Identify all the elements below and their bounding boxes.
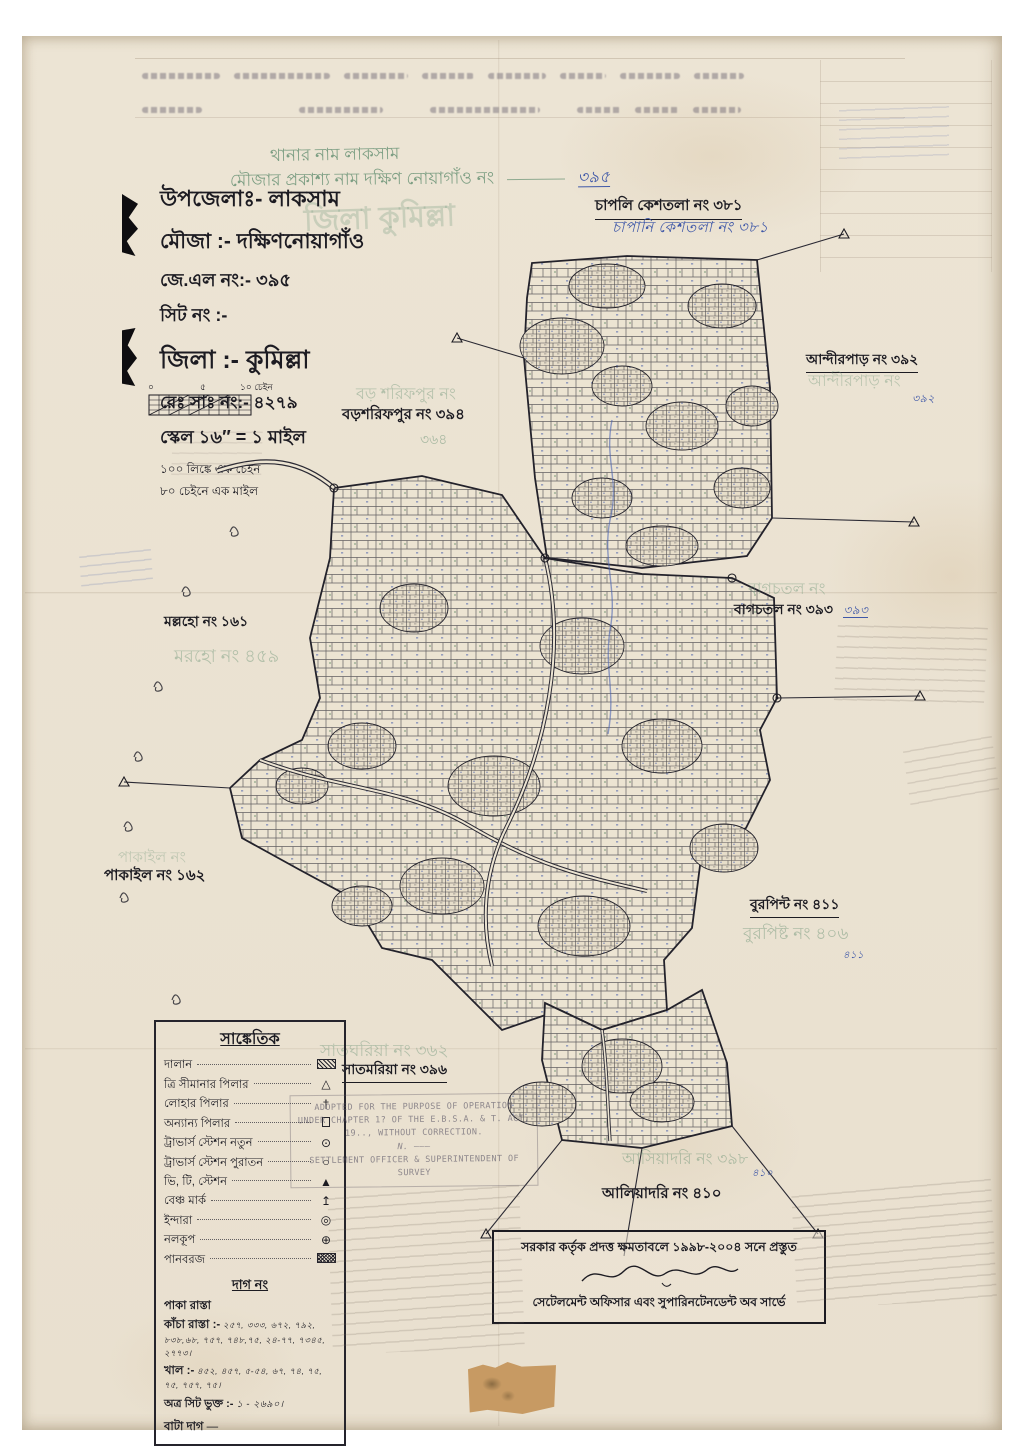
scanned-mouza-map-sheet: থানার নাম লাকসাম মৌজার প্রকাশ্য নাম দক্ষ… (0, 0, 1024, 1449)
dag-row-paka-rasta: পাকা রাস্তা (164, 1297, 336, 1316)
region-label-pakail-ink: পাকাইল নং ১৬২ (104, 864, 205, 889)
stamp-en-line6: SURVEY (295, 1166, 533, 1182)
region-label-mallaho-pencil: মরহো নং ৪৫৯ (174, 642, 279, 673)
pencil-notes-cluster (834, 616, 988, 708)
legend-item-tubewell: নলকূপ⊕ (164, 1231, 336, 1250)
legend-item-betel-garden: পানবরজ (164, 1250, 336, 1269)
stamp-en-line5: SETTLEMENT OFFICER & SUPERINTENDENT OF (295, 1152, 533, 1168)
pencil-notes-cluster (171, 422, 263, 481)
region-label-barasharifpur-pencil-number: ৩৬৪ (420, 428, 447, 452)
english-rubber-stamp: ADOPTED FOR THE PURPOSE OF OPERATION UND… (290, 1093, 539, 1189)
legend-title: সাঙ্কেতিক (164, 1027, 336, 1053)
faint-top-register-table (135, 58, 905, 118)
dag-row-khal: খাল :- ৪৫২, ৪৫৭, ৫-৫৪, ৬৭, ৭৪, ৭৫, ৭৫, ৭… (164, 1364, 336, 1393)
region-label-satghoria-ink: সাতমরিয়া নং ৩৯৬ (342, 1058, 447, 1083)
blue-pen-doodle (602, 418, 632, 738)
upazila-line: উপজেলাঃ- লাকসাম (160, 182, 520, 219)
officer-signature (574, 1259, 744, 1289)
region-label-andirpar-pencil: আন্দীরপাড় নং (808, 368, 901, 395)
region-label-chapli-keshtola-blue: চাপানি কেশতলা নং ৩৮১ (612, 216, 769, 241)
region-label-asiadari-blue-number: ৪১০ (752, 1166, 773, 1183)
dag-number-heading: দাগ নং (164, 1274, 336, 1295)
adjacent-sheet-curl-marks (120, 527, 238, 1004)
region-label-asiadari-ink: আলিয়াদরি নং ৪১০ (602, 1182, 722, 1207)
blue-pencil-notes (79, 544, 154, 591)
building-hatch-icon (316, 1056, 336, 1075)
region-label-burpint-blue-number: ৪১১ (843, 948, 864, 965)
pencil-dash (507, 178, 565, 180)
region-label-asiadari-pencil: আসিয়াদরি নং ৩৯৮ (622, 1146, 748, 1173)
paper-sheet: থানার নাম লাকসাম মৌজার প্রকাশ্য নাম দক্ষ… (22, 36, 1002, 1430)
pencil-notes-cluster (327, 1183, 525, 1355)
dag-row-kacha-rasta: কাঁচা রাস্তা :- ২৫৭, ৩৩৩, ৬৭২, ৭৯২, ৮৩৮,… (164, 1318, 336, 1361)
certification-line2: সেটেলমেন্ট অফিসার এবং সুপারিনটেনডেন্ট অব… (503, 1294, 815, 1314)
dag-row-bata-dag: বাটা দাগ — (164, 1418, 336, 1437)
region-label-burpint-ink: বুরপিন্ট নং ৪১১ (750, 893, 839, 918)
faint-blue-notes (839, 102, 949, 162)
pencil-mouza-number: ৩৯৫ (578, 169, 611, 187)
certification-box: সরকার কর্তৃক প্রদত্ত ক্ষমতাবলে ১৯৯৮-২০০৪… (492, 1230, 826, 1324)
legend-item-building: দালান (164, 1056, 336, 1075)
region-label-barasharifpur-ink: বড়শরিফপুর নং ৩৯৪ (342, 403, 465, 428)
region-label-mallaho-ink: মল্লহো নং ১৬১ (164, 610, 248, 634)
certification-line1: সরকার কর্তৃক প্রদত্ত ক্ষমতাবলে ১৯৯৮-২০০৪… (503, 1239, 815, 1259)
legend-box: সাঙ্কেতিক দালান ত্রি সীমানার পিলার△ লোহা… (154, 1020, 346, 1446)
legend-item-tri-boundary-pillar: ত্রি সীমানার পিলার△ (164, 1075, 336, 1094)
region-label-burpint-pencil: বুরপিষ্ট নং ৪০৬ (743, 921, 848, 949)
legend-item-well: ইন্দারা◎ (164, 1211, 336, 1230)
triangle-outline-icon: △ (316, 1075, 336, 1094)
region-label-bagchatal-ink: বাগচতল নং ৩৯৩ (734, 601, 833, 617)
pencil-notes-cluster (791, 1177, 997, 1309)
dag-row-sheet-included: অত্র সিট ভুক্ত :- ১ - ২৬৯০। (164, 1396, 336, 1414)
torn-paper-fragment (468, 1362, 556, 1414)
legend-item-benchmark: বেঞ্চ মার্ক↥ (164, 1192, 336, 1211)
region-label-andirpar-blue-number: ৩৯২ (912, 390, 935, 409)
pencil-notes-cluster (902, 730, 1001, 810)
